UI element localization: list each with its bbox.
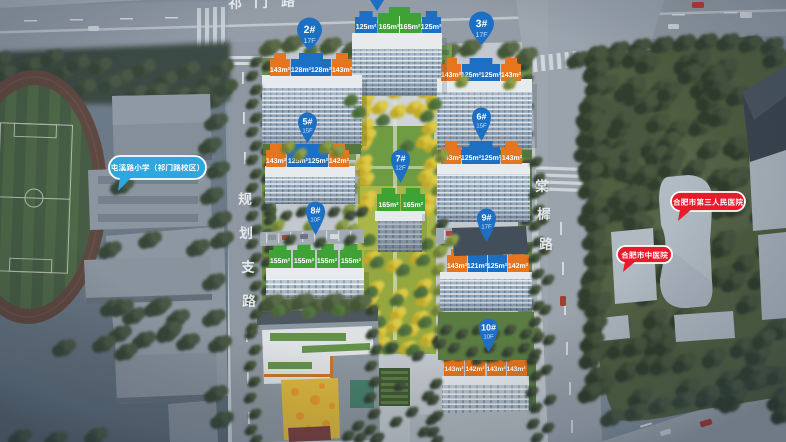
svg-text:10F: 10F bbox=[483, 334, 494, 341]
svg-text:15F: 15F bbox=[476, 123, 487, 130]
svg-text:17F: 17F bbox=[481, 224, 492, 231]
svg-text:5#: 5# bbox=[302, 117, 312, 127]
svg-text:17F: 17F bbox=[475, 32, 487, 39]
svg-text:12F: 12F bbox=[395, 165, 406, 172]
svg-text:17F: 17F bbox=[303, 38, 315, 45]
svg-text:8#: 8# bbox=[310, 206, 320, 216]
svg-text:10F: 10F bbox=[310, 217, 321, 224]
svg-text:2#: 2# bbox=[304, 24, 316, 36]
svg-text:7#: 7# bbox=[395, 154, 405, 164]
svg-text:9#: 9# bbox=[481, 213, 491, 223]
svg-text:15F: 15F bbox=[302, 128, 313, 135]
svg-text:3#: 3# bbox=[476, 18, 488, 30]
svg-text:10#: 10# bbox=[481, 323, 496, 333]
svg-text:6#: 6# bbox=[476, 112, 486, 122]
